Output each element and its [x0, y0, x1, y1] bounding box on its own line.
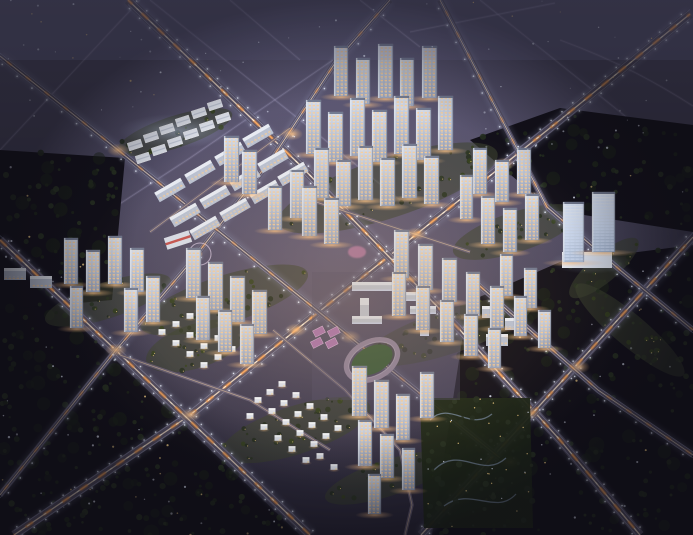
atmosphere-overlay	[0, 0, 693, 535]
aerial-rendering-canvas	[0, 0, 693, 535]
masterplan-scene	[0, 0, 693, 535]
